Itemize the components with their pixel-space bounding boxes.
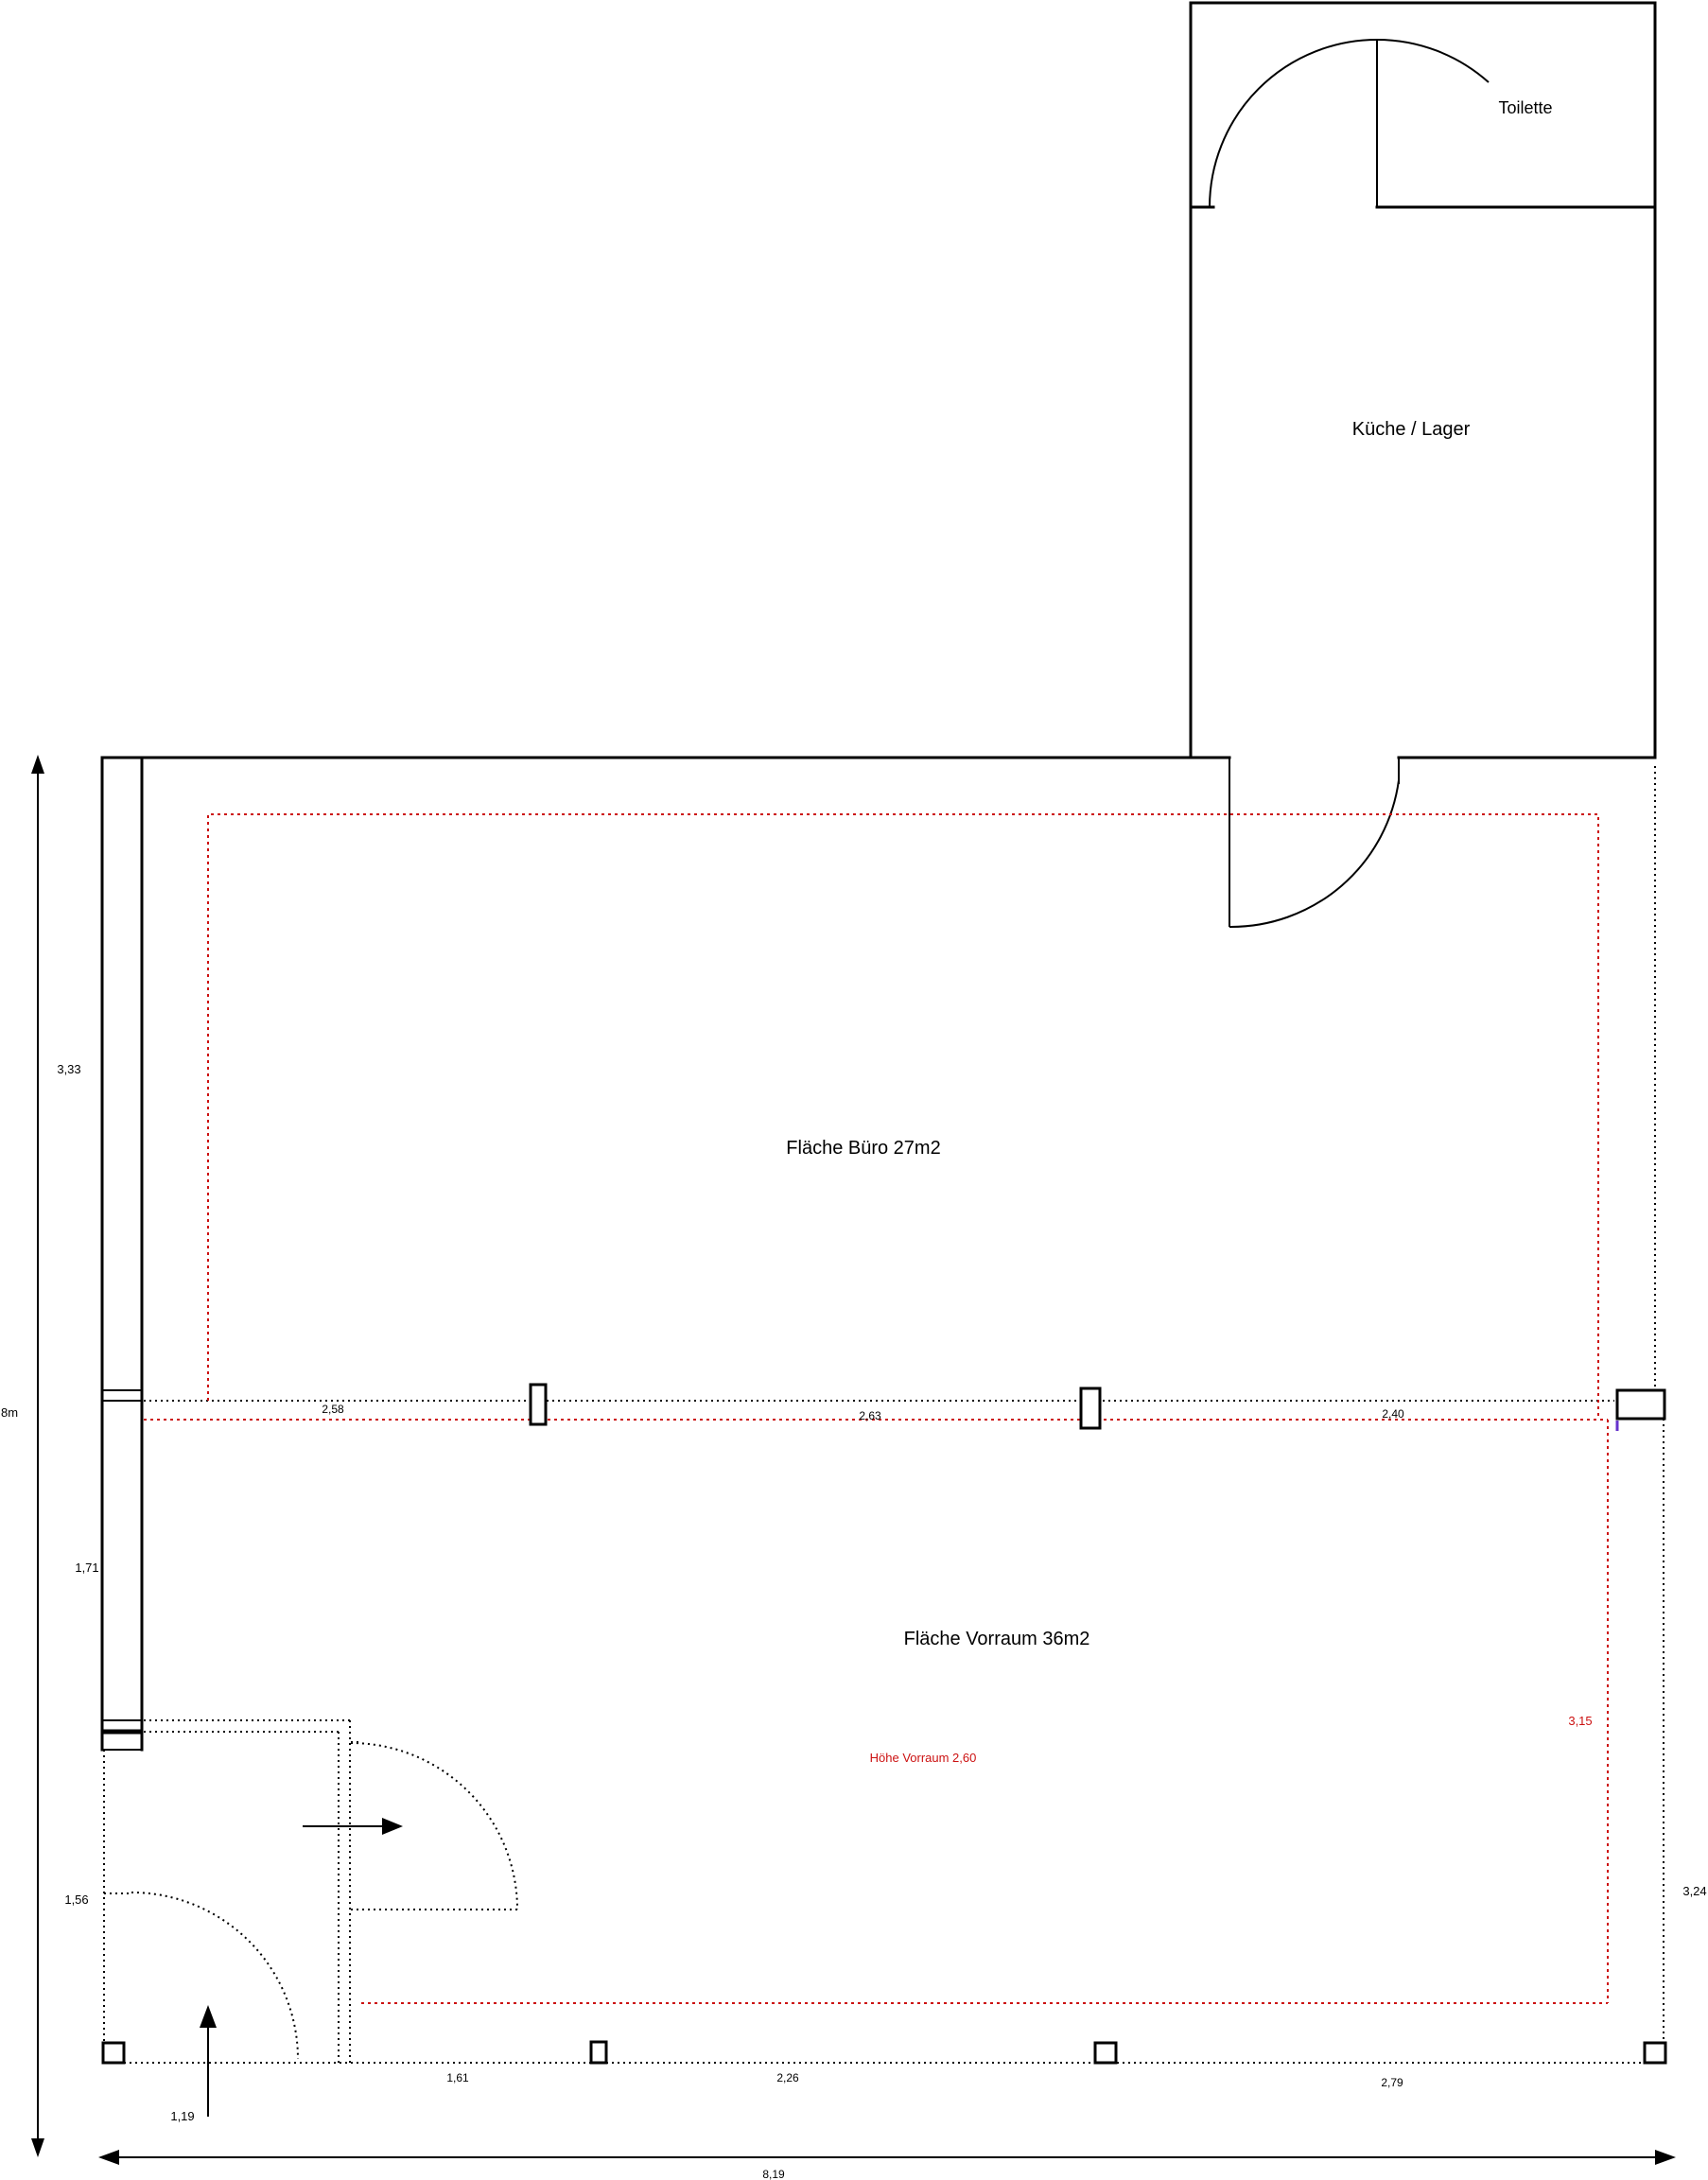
dim-label-left-171: 1,71: [75, 1561, 98, 1575]
room-label-vorraum: Fläche Vorraum 36m2: [904, 1629, 1090, 1649]
left-dimension-arrow-up-icon: [31, 755, 44, 774]
column-bottom-left: [103, 2043, 124, 2063]
bottom-dimension-arrow-right-icon: [1655, 2150, 1676, 2165]
annotation-hoehe-vorraum: Höhe Vorraum 2,60: [870, 1751, 977, 1765]
dim-label-middle-258: 2,58: [322, 1403, 344, 1416]
dim-label-left-156: 1,56: [64, 1892, 88, 1907]
room-label-toilette: Toilette: [1498, 98, 1552, 117]
room-label-buero: Fläche Büro 27m2: [786, 1138, 940, 1159]
entrance-door-arc: [131, 1892, 298, 2059]
entry-arrow-up-icon: [200, 2005, 217, 2028]
left-dimension-arrow-down-icon: [31, 2138, 44, 2157]
dim-label-bottom-161: 1,61: [446, 2071, 469, 2084]
entry-arrow-right-icon: [382, 1818, 403, 1835]
left-wall-window-ticks: [102, 1390, 142, 1750]
floor-plan-canvas: Toilette Küche / Lager Fläche Büro 27m2 …: [0, 0, 1708, 2180]
buero-area-red-outline: [208, 814, 1598, 1420]
column-middle-2: [1081, 1388, 1100, 1428]
vestibule-partition-dotted: [339, 1720, 350, 2063]
vestibule-partition-stubs: [144, 1720, 350, 1732]
toilette-door-arc: [1210, 40, 1377, 207]
dim-label-left-8m: 8m: [1, 1405, 18, 1420]
column-middle-1: [531, 1385, 546, 1424]
floor-plan-svg: Toilette Küche / Lager Fläche Büro 27m2 …: [0, 0, 1708, 2180]
dim-label-bottom-226: 2,26: [776, 2071, 799, 2084]
buero-door-arc: [1229, 780, 1399, 927]
dim-label-middle-240: 2,40: [1382, 1407, 1404, 1421]
column-bottom-right: [1645, 2043, 1665, 2063]
dim-label-entry-119: 1,19: [170, 2109, 194, 2123]
dim-label-left-333: 3,33: [57, 1062, 80, 1076]
dim-label-bottom-total-819: 8,19: [762, 2168, 785, 2180]
kueche-outline-wall: [1191, 3, 1655, 758]
room-label-kueche-lager: Küche / Lager: [1352, 419, 1471, 440]
column-right-box: [1617, 1390, 1664, 1419]
bottom-dimension-arrow-left-icon: [98, 2150, 119, 2165]
column-bottom-mid2: [1095, 2043, 1116, 2063]
toilette-door-arc-secondary: [1377, 40, 1489, 82]
dim-label-middle-263: 2,63: [859, 1409, 881, 1422]
red-annotation-labels: Höhe Vorraum 2,60 3,15: [870, 1714, 1593, 1765]
dim-label-right-324: 3,24: [1682, 1884, 1706, 1898]
dim-label-bottom-279: 2,79: [1381, 2076, 1403, 2089]
column-bottom-mid1: [591, 2042, 606, 2063]
dim-label-right-red-315: 3,15: [1568, 1714, 1592, 1728]
